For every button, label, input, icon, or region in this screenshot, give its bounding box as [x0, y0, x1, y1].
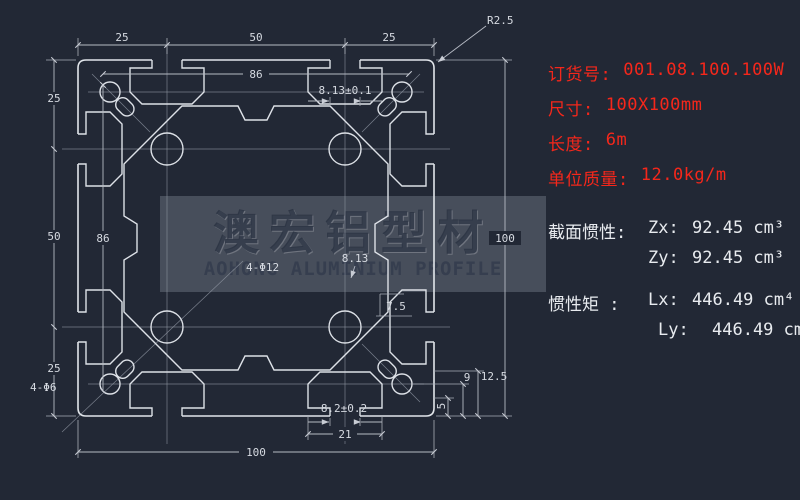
center-holes: [151, 133, 361, 343]
inertia-block: 截面惯性: Zx: 92.45 cm³ Zy: 92.45 cm³ 惯性矩 : …: [548, 218, 800, 340]
spec-length: 长度: 6m: [548, 130, 800, 155]
dim-corner-radius: R2.5: [487, 14, 514, 27]
dim-overall-right: 100: [495, 232, 515, 245]
spec-panel: 订货号: 001.08.100.100W 尺寸: 100X100mm 长度: 6…: [548, 60, 800, 345]
dim-center-holes: 4-Φ12: [246, 261, 279, 274]
spec-label: 单位质量:: [548, 165, 629, 190]
spec-label: 尺寸:: [548, 95, 594, 120]
dim-depth-a: 12.5: [481, 370, 508, 383]
inertia-lx: 惯性矩 : Lx: 446.49 cm⁴: [548, 290, 800, 315]
dim-overall-bottom: 100: [246, 446, 266, 459]
spec-size: 尺寸: 100X100mm: [548, 95, 800, 120]
product-drawing-page: 澳宏铝型材 AOHONG ALUMINIUM PROFILE: [0, 0, 800, 500]
dim-left-top: 25: [47, 92, 60, 105]
dim-bottom-slot-opening: 8.2±0.2: [321, 402, 367, 415]
spec-order-number: 订货号: 001.08.100.100W: [548, 60, 800, 85]
dim-inner-top: 86: [249, 68, 262, 81]
dim-top-left: 25: [115, 31, 128, 44]
spec-value: 100X100mm: [606, 95, 703, 120]
spec-value: 12.0kg/m: [641, 165, 727, 190]
dim-depth-b: 9: [464, 371, 471, 384]
spec-unit-weight: 单位质量: 12.0kg/m: [548, 165, 800, 190]
dim-top-slot-opening: 8.13±0.1: [319, 84, 372, 97]
section-modulus-zx: 截面惯性: Zx: 92.45 cm³: [548, 218, 800, 243]
inertia-ly: Ly: 446.49 cm⁴: [548, 320, 800, 340]
spec-value: 6m: [606, 130, 627, 155]
profile-cad-drawing: 25 50 25 25 50 25 86 86 100 100 21 8.2±0…: [0, 0, 545, 500]
spec-label: 订货号:: [548, 60, 611, 85]
dimension-texts: 25 50 25 25 50 25 86 86 100 100 21 8.2±0…: [30, 14, 515, 459]
dim-top-right: 25: [382, 31, 395, 44]
hole-leader-line: [62, 261, 243, 432]
dim-depth-c: 5: [435, 403, 448, 410]
dim-left-mid: 50: [47, 230, 60, 243]
dim-corner-holes: 4-Φ6: [30, 381, 57, 394]
dim-inner-left: 86: [96, 232, 109, 245]
dim-top-mid: 50: [249, 31, 262, 44]
dim-mid-slot-opening: 8.13: [342, 252, 369, 265]
section-modulus-zy: Zy: 92.45 cm³: [548, 248, 800, 268]
dim-left-bottom: 25: [47, 362, 60, 375]
center-cavity: [124, 106, 388, 370]
spec-label: 长度:: [548, 130, 594, 155]
inertia-label: 惯性矩 :: [548, 290, 648, 315]
dim-slot-depth: 7.5: [386, 300, 406, 313]
spec-value: 001.08.100.100W: [623, 60, 784, 85]
section-modulus-label: 截面惯性:: [548, 218, 648, 243]
dim-text-backs: [42, 67, 521, 459]
dim-bottom-slot-width: 21: [338, 428, 351, 441]
spec-list: 订货号: 001.08.100.100W 尺寸: 100X100mm 长度: 6…: [548, 60, 800, 190]
